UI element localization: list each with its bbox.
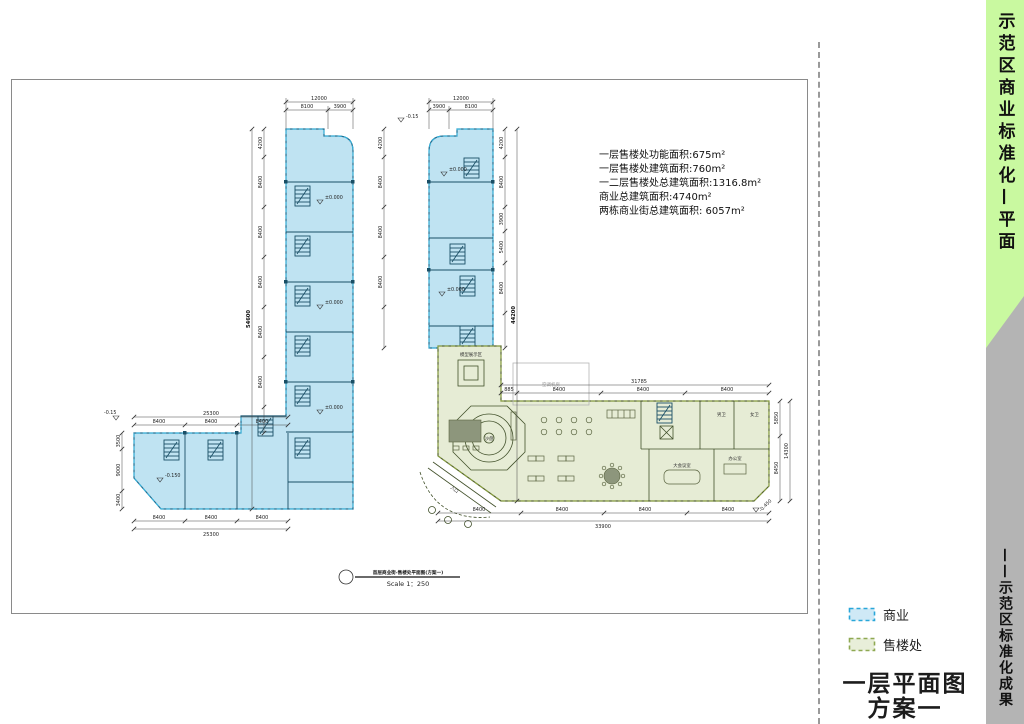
svg-text:885: 885 bbox=[504, 387, 514, 393]
legend-item-commercial: 商业 bbox=[848, 606, 978, 622]
svg-text:3500: 3500 bbox=[116, 435, 122, 448]
commercial-building-right: ±0.000 ±0.000 bbox=[427, 129, 495, 348]
svg-text:33900: 33900 bbox=[595, 524, 611, 530]
svg-text:8400: 8400 bbox=[499, 176, 505, 189]
svg-text:一层售楼处功能面积:675m²: 一层售楼处功能面积:675m² bbox=[599, 148, 725, 161]
svg-text:4200: 4200 bbox=[378, 137, 384, 150]
svg-text:8400: 8400 bbox=[258, 326, 264, 339]
drawing-sheet-frame: ±0.000 ±0.000 ±0.000 -0.150 ±0.000 ±0.00… bbox=[11, 79, 808, 614]
svg-text:3400: 3400 bbox=[116, 494, 122, 507]
svg-text:8400: 8400 bbox=[258, 276, 264, 289]
svg-text:模型展示区: 模型展示区 bbox=[460, 351, 483, 358]
svg-text:4200: 4200 bbox=[258, 137, 264, 150]
svg-text:±0.000: ±0.000 bbox=[447, 287, 465, 293]
svg-text:3900: 3900 bbox=[499, 213, 505, 226]
roof-opening-box: 空调机房 bbox=[513, 363, 589, 405]
svg-text:8400: 8400 bbox=[639, 507, 652, 513]
svg-text:商业总建筑面积:4740m²: 商业总建筑面积:4740m² bbox=[599, 190, 712, 203]
area-annotations: 一层售楼处功能面积:675m² 一层售楼处建筑面积:760m² 一二层售楼处总建… bbox=[599, 148, 761, 217]
svg-text:12000: 12000 bbox=[453, 96, 469, 102]
svg-text:8400: 8400 bbox=[378, 176, 384, 189]
svg-text:±0.000: ±0.000 bbox=[325, 405, 343, 411]
sheet-title-line2: 方案一 bbox=[840, 697, 970, 722]
legend-label-sales-office: 售楼处 bbox=[883, 635, 922, 654]
svg-text:一二层售楼处总建筑面积:1316.8m²: 一二层售楼处总建筑面积:1316.8m² bbox=[599, 176, 761, 189]
svg-text:8400: 8400 bbox=[378, 226, 384, 239]
svg-text:-0.15: -0.15 bbox=[104, 410, 116, 416]
svg-text:8400: 8400 bbox=[258, 226, 264, 239]
svg-text:±0.000: ±0.000 bbox=[325, 300, 343, 306]
svg-text:-0.15: -0.15 bbox=[406, 114, 418, 120]
legend-item-sales-office: 售楼处 bbox=[848, 636, 978, 652]
svg-text:8400: 8400 bbox=[722, 507, 735, 513]
svg-text:±0.000: ±0.000 bbox=[325, 195, 343, 201]
svg-text:8400: 8400 bbox=[721, 387, 734, 393]
svg-text:5400: 5400 bbox=[499, 241, 505, 254]
svg-text:办公室: 办公室 bbox=[728, 455, 742, 462]
legend-swatch-sales-office-icon bbox=[848, 637, 876, 652]
svg-text:8400: 8400 bbox=[205, 419, 218, 425]
svg-text:8400: 8400 bbox=[553, 387, 566, 393]
svg-text:沙盘: 沙盘 bbox=[485, 435, 494, 442]
svg-text:4200: 4200 bbox=[499, 137, 505, 150]
legend-swatch-commercial-icon bbox=[848, 607, 876, 622]
svg-text:女卫: 女卫 bbox=[750, 411, 759, 418]
svg-text:3900: 3900 bbox=[433, 104, 446, 110]
svg-text:男卫: 男卫 bbox=[717, 412, 726, 418]
svg-text:5850: 5850 bbox=[774, 412, 780, 425]
svg-text:±0.000: ±0.000 bbox=[449, 167, 467, 173]
floor-plan-drawing: ±0.000 ±0.000 ±0.000 -0.150 ±0.000 ±0.00… bbox=[12, 80, 807, 613]
svg-text:8450: 8450 bbox=[774, 462, 780, 475]
svg-text:8100: 8100 bbox=[301, 104, 314, 110]
svg-text:8400: 8400 bbox=[256, 515, 269, 521]
svg-text:两栋商业街总建筑面积: 6057m²: 两栋商业街总建筑面积: 6057m² bbox=[599, 204, 745, 217]
svg-text:25300: 25300 bbox=[203, 411, 219, 417]
sheet-title-line1: 一层平面图 bbox=[840, 672, 970, 697]
svg-text:8400: 8400 bbox=[473, 507, 486, 513]
svg-text:8400: 8400 bbox=[499, 282, 505, 295]
sheet-title: 一层平面图 方案一 bbox=[840, 672, 970, 722]
svg-text:8400: 8400 bbox=[258, 376, 264, 389]
svg-text:8400: 8400 bbox=[153, 515, 166, 521]
scale-mark: 首层商业街-售楼处平面图(方案一) Scale 1：250 bbox=[339, 569, 460, 588]
svg-text:-0.150: -0.150 bbox=[165, 473, 180, 479]
legend-label-commercial: 商业 bbox=[883, 605, 909, 624]
banner-title-vertical: 示范区商业标准化—平面 bbox=[986, 12, 1024, 254]
svg-text:8400: 8400 bbox=[256, 419, 269, 425]
svg-text:12000: 12000 bbox=[311, 96, 327, 102]
sales-office-building: 模型展示区 沙盘 bbox=[420, 346, 773, 528]
svg-text:8400: 8400 bbox=[637, 387, 650, 393]
svg-text:大会议室: 大会议室 bbox=[673, 462, 691, 469]
commercial-building-left: ±0.000 ±0.000 ±0.000 -0.150 bbox=[134, 129, 355, 509]
svg-text:14300: 14300 bbox=[784, 443, 790, 459]
svg-text:31785: 31785 bbox=[631, 379, 647, 385]
svg-text:8100: 8100 bbox=[465, 104, 478, 110]
banner-subtitle-vertical: ——示范区标准化成果 bbox=[986, 548, 1024, 708]
svg-text:8400: 8400 bbox=[556, 507, 569, 513]
svg-text:25300: 25300 bbox=[203, 532, 219, 538]
svg-text:8400: 8400 bbox=[153, 419, 166, 425]
svg-text:8400: 8400 bbox=[378, 276, 384, 289]
svg-text:Scale 1：250: Scale 1：250 bbox=[387, 580, 430, 588]
svg-text:44200: 44200 bbox=[511, 306, 517, 324]
svg-text:54600: 54600 bbox=[246, 310, 252, 328]
svg-text:9000: 9000 bbox=[116, 464, 122, 477]
svg-text:一层售楼处建筑面积:760m²: 一层售楼处建筑面积:760m² bbox=[599, 162, 725, 175]
svg-text:8400: 8400 bbox=[205, 515, 218, 521]
svg-text:8400: 8400 bbox=[258, 176, 264, 189]
page-fold-line bbox=[818, 42, 820, 724]
legend: 商业 售楼处 bbox=[848, 606, 978, 666]
svg-text:入口: 入口 bbox=[449, 485, 460, 495]
svg-text:3900: 3900 bbox=[334, 104, 347, 110]
svg-text:首层商业街-售楼处平面图(方案一): 首层商业街-售楼处平面图(方案一) bbox=[373, 569, 443, 576]
